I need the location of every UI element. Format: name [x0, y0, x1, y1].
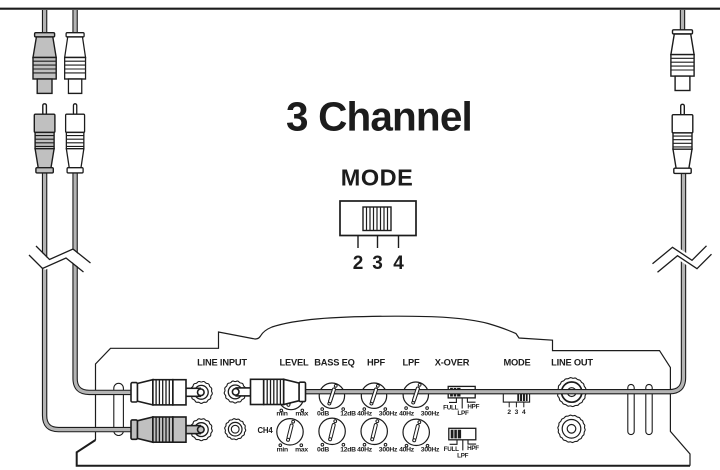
svg-text:max: max — [295, 411, 308, 418]
svg-text:X-OVER: X-OVER — [435, 358, 470, 368]
svg-text:300Hz: 300Hz — [421, 411, 440, 418]
svg-text:4: 4 — [393, 253, 404, 274]
svg-text:MODE: MODE — [341, 165, 414, 191]
svg-text:0dB: 0dB — [317, 411, 329, 418]
svg-text:300Hz: 300Hz — [379, 447, 398, 454]
svg-text:300Hz: 300Hz — [379, 411, 398, 418]
svg-text:HPF: HPF — [467, 445, 479, 452]
svg-text:4: 4 — [522, 409, 526, 416]
svg-text:2: 2 — [507, 409, 511, 416]
svg-text:LEVEL: LEVEL — [280, 358, 309, 368]
svg-text:min: min — [277, 447, 288, 454]
svg-text:BASS EQ: BASS EQ — [314, 358, 354, 368]
svg-text:LPF: LPF — [457, 410, 469, 417]
svg-text:HPF: HPF — [467, 404, 479, 411]
svg-text:3: 3 — [372, 253, 383, 274]
svg-text:12dB: 12dB — [340, 447, 356, 454]
svg-text:300Hz: 300Hz — [421, 447, 440, 454]
svg-text:0dB: 0dB — [317, 447, 329, 454]
svg-text:LINE INPUT: LINE INPUT — [197, 358, 247, 368]
svg-text:2: 2 — [353, 253, 364, 274]
svg-text:FULL: FULL — [443, 404, 458, 411]
svg-text:LINE OUT: LINE OUT — [551, 358, 593, 368]
svg-text:LPF: LPF — [457, 452, 469, 459]
svg-text:3: 3 — [515, 409, 519, 416]
svg-text:LPF: LPF — [403, 358, 420, 368]
svg-text:max: max — [295, 447, 308, 454]
svg-text:12dB: 12dB — [340, 411, 356, 418]
svg-text:CH4: CH4 — [258, 426, 274, 435]
svg-text:40Hz: 40Hz — [399, 411, 415, 418]
svg-text:MODE: MODE — [503, 358, 530, 368]
svg-text:min: min — [276, 411, 287, 418]
svg-text:3 Channel: 3 Channel — [286, 94, 472, 140]
svg-text:HPF: HPF — [367, 358, 386, 368]
svg-text:40Hz: 40Hz — [357, 411, 373, 418]
svg-text:40Hz: 40Hz — [357, 447, 373, 454]
svg-text:40Hz: 40Hz — [399, 447, 415, 454]
